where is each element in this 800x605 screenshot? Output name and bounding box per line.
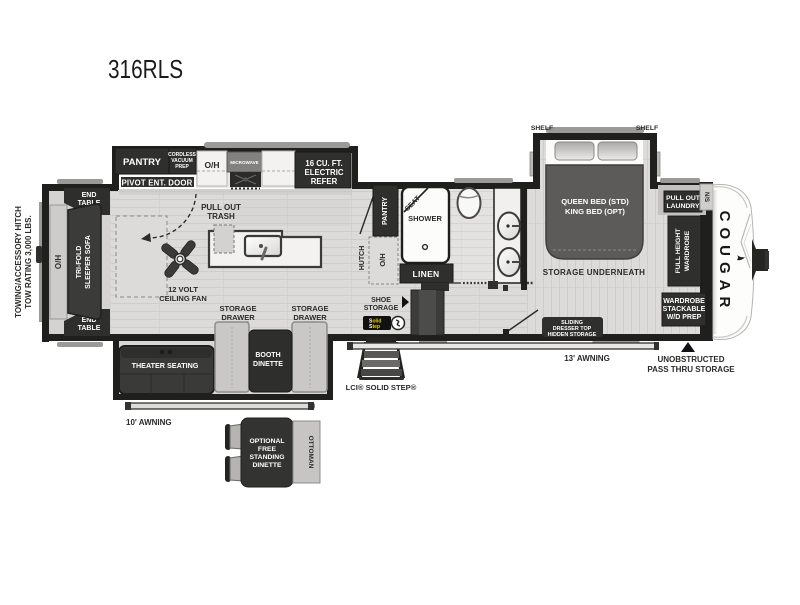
svg-text:FULL HEIGHT: FULL HEIGHT bbox=[675, 228, 682, 274]
svg-text:316RLS: 316RLS bbox=[108, 55, 183, 84]
svg-text:STORAGE: STORAGE bbox=[292, 304, 329, 313]
svg-text:12 VOLT: 12 VOLT bbox=[168, 285, 198, 294]
svg-text:STANDING: STANDING bbox=[250, 454, 285, 461]
svg-text:TRI-FOLD: TRI-FOLD bbox=[76, 246, 83, 279]
svg-text:DRAWER: DRAWER bbox=[293, 313, 327, 322]
svg-text:BOOTH: BOOTH bbox=[255, 352, 280, 359]
svg-text:DRAWER: DRAWER bbox=[221, 313, 255, 322]
svg-text:WARDROBE: WARDROBE bbox=[663, 298, 705, 305]
svg-text:TOWING/ACCESSORY HITCH: TOWING/ACCESSORY HITCH bbox=[14, 206, 23, 318]
svg-text:DINETTE: DINETTE bbox=[252, 462, 282, 469]
svg-text:SHOWER: SHOWER bbox=[408, 214, 442, 223]
svg-text:PASS THRU STORAGE: PASS THRU STORAGE bbox=[647, 365, 735, 374]
svg-text:THEATER SEATING: THEATER SEATING bbox=[132, 361, 199, 370]
svg-text:CEILING FAN: CEILING FAN bbox=[159, 294, 207, 303]
svg-text:SHELF: SHELF bbox=[636, 125, 658, 132]
svg-text:SHOE: SHOE bbox=[371, 297, 391, 304]
svg-text:STORAGE UNDERNEATH: STORAGE UNDERNEATH bbox=[543, 268, 645, 277]
svg-text:QUEEN BED (STD): QUEEN BED (STD) bbox=[561, 197, 629, 206]
svg-text:HUTCH: HUTCH bbox=[359, 246, 366, 271]
svg-text:SLEEPER SOFA: SLEEPER SOFA bbox=[85, 235, 92, 289]
svg-text:PULL OUT: PULL OUT bbox=[201, 203, 241, 212]
svg-text:O/H: O/H bbox=[54, 255, 63, 269]
svg-text:STORAGE: STORAGE bbox=[220, 304, 257, 313]
svg-text:PANTRY: PANTRY bbox=[382, 197, 389, 225]
svg-text:LAUNDRY: LAUNDRY bbox=[667, 203, 700, 210]
svg-text:10' AWNING: 10' AWNING bbox=[126, 418, 172, 427]
svg-text:13' AWNING: 13' AWNING bbox=[564, 354, 610, 363]
svg-text:UNOBSTRUCTED: UNOBSTRUCTED bbox=[657, 355, 724, 364]
svg-text:O/H: O/H bbox=[378, 253, 387, 266]
svg-text:PREP: PREP bbox=[175, 164, 189, 170]
svg-text:OTTOMAN: OTTOMAN bbox=[307, 436, 314, 469]
svg-text:16 CU. FT.: 16 CU. FT. bbox=[305, 159, 342, 168]
svg-text:PIVOT ENT. DOOR: PIVOT ENT. DOOR bbox=[121, 179, 192, 188]
svg-text:PULL OUT: PULL OUT bbox=[666, 195, 701, 202]
svg-text:LINEN: LINEN bbox=[413, 269, 440, 279]
svg-text:KING BED (OPT): KING BED (OPT) bbox=[565, 207, 625, 216]
svg-text:OPTIONAL: OPTIONAL bbox=[249, 438, 284, 445]
svg-text:tep: tep bbox=[373, 324, 381, 330]
svg-text:TRASH: TRASH bbox=[207, 212, 235, 221]
svg-text:MICROWAVE: MICROWAVE bbox=[230, 160, 259, 165]
svg-text:W/D PREP: W/D PREP bbox=[667, 314, 702, 321]
svg-text:N/S: N/S bbox=[703, 192, 709, 202]
svg-text:DINETTE: DINETTE bbox=[253, 361, 283, 368]
svg-text:O/H: O/H bbox=[204, 160, 219, 170]
svg-text:SHELF: SHELF bbox=[531, 125, 553, 132]
svg-text:LCI® SOLID STEP®: LCI® SOLID STEP® bbox=[346, 383, 417, 392]
svg-text:WARDROBE: WARDROBE bbox=[684, 230, 691, 271]
svg-text:HIDDEN STORAGE: HIDDEN STORAGE bbox=[548, 332, 597, 338]
svg-text:ELECTRIC: ELECTRIC bbox=[305, 168, 344, 177]
svg-text:COUGAR: COUGAR bbox=[716, 211, 733, 314]
svg-text:REFER: REFER bbox=[311, 177, 338, 186]
svg-text:TABLE: TABLE bbox=[78, 325, 101, 332]
svg-text:PANTRY: PANTRY bbox=[123, 157, 162, 168]
svg-text:END: END bbox=[82, 192, 97, 199]
svg-text:FREE: FREE bbox=[258, 446, 277, 453]
svg-text:STORAGE: STORAGE bbox=[364, 305, 399, 312]
svg-text:TOW RATING 3,000 LBS.: TOW RATING 3,000 LBS. bbox=[24, 215, 33, 309]
svg-text:STACKABLE: STACKABLE bbox=[663, 306, 706, 313]
